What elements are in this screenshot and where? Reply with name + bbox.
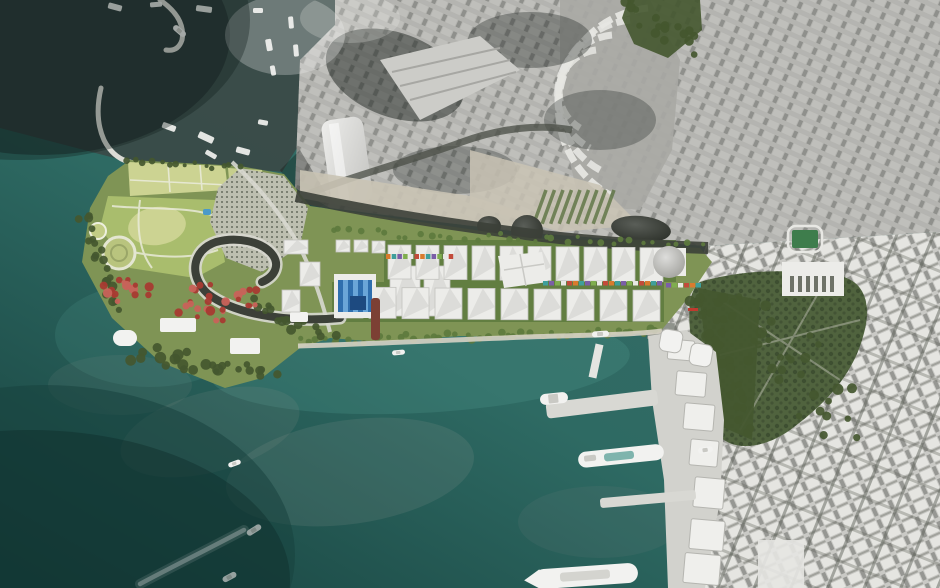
kowloon-park-trees-tree — [778, 366, 786, 374]
red-tree — [126, 284, 131, 289]
highway-row-tree — [335, 226, 341, 232]
kowloon-park-trees-tree — [807, 332, 814, 339]
mid-scatter-tree — [266, 305, 274, 313]
north-edge-tree — [226, 162, 232, 168]
terminal-block — [675, 371, 707, 398]
park-pavilion — [290, 312, 308, 322]
terminal-block — [683, 552, 721, 585]
terminal-block — [689, 519, 725, 552]
tst-wedge-trees-tree — [726, 391, 734, 399]
tst-wedge-trees-tree — [734, 416, 742, 424]
south-tip-tree — [235, 366, 242, 373]
highway-row-tree — [701, 242, 705, 246]
south-tip-tree — [153, 343, 162, 352]
highway-row-tree — [429, 233, 436, 240]
red-tree — [206, 306, 216, 316]
south-tip-tree — [174, 356, 181, 363]
kowloon-park-trees-tree — [845, 416, 851, 422]
red-tree — [189, 285, 197, 293]
kowloon-park-trees-tree — [729, 298, 737, 306]
boat-deck — [597, 332, 603, 336]
market-stall — [392, 254, 397, 259]
mid-scatter-tree — [250, 295, 258, 303]
promenade-row-tree — [452, 331, 458, 337]
tst-wedge-trees-tree — [713, 317, 721, 325]
gray-dome-venue — [653, 246, 685, 278]
tst-wedge-trees-tree — [733, 403, 741, 411]
kowloon-park-trees-tree — [767, 317, 776, 326]
highway-row-tree — [438, 234, 443, 239]
market-stall — [645, 281, 650, 286]
large-white-block — [758, 540, 804, 588]
tst-wedge-trees-tree — [706, 310, 713, 317]
south-tip-tree — [183, 348, 191, 356]
kowloon-park-trees-tree — [797, 371, 805, 379]
market-stall — [672, 283, 677, 288]
red-tree — [253, 302, 258, 307]
red-marker — [688, 308, 698, 311]
promenade-row-tree — [298, 336, 303, 341]
kowloon-park-trees-tree — [719, 315, 727, 323]
highway-row-tree — [498, 231, 503, 236]
north-forest-tree — [680, 30, 689, 39]
boat-deck — [548, 394, 559, 404]
highway-row-tree — [381, 230, 387, 236]
kowloon-park-trees-tree — [767, 364, 777, 374]
kowloon-park-trees-tree — [718, 293, 729, 304]
market-stall — [573, 281, 578, 286]
red-tree — [197, 282, 204, 289]
market-stall — [609, 281, 614, 286]
sports-pitch — [792, 230, 818, 248]
red-tree — [133, 283, 138, 288]
market-stall — [386, 254, 391, 259]
mid-scatter-tree — [315, 329, 322, 336]
red-tree — [145, 282, 154, 291]
north-edge-tree — [123, 157, 130, 164]
north-edge-tree — [149, 158, 156, 165]
highway-row-tree — [533, 239, 537, 243]
south-tip-tree — [188, 365, 198, 375]
north-edge-tree — [183, 163, 187, 167]
red-tree — [213, 318, 219, 324]
north-edge-tree — [193, 160, 198, 165]
highway-row-tree — [462, 236, 468, 242]
red-tree — [236, 297, 241, 302]
north-edge-tree — [209, 166, 214, 171]
kowloon-park-trees-tree — [809, 390, 819, 400]
west-edge-tree — [91, 240, 98, 247]
boat — [592, 330, 609, 337]
highway-row-tree — [612, 242, 617, 247]
market-stall — [666, 283, 671, 288]
boat-deck — [396, 351, 401, 354]
kowloon-park-trees-tree — [728, 312, 737, 321]
market-stall — [621, 281, 626, 286]
tst-wedge-trees-tree — [694, 298, 701, 305]
highway-row-tree — [506, 236, 512, 242]
red-tree — [220, 317, 226, 323]
market-stall — [651, 281, 656, 286]
market-stall — [426, 254, 431, 259]
highway-row-tree — [418, 231, 424, 237]
red-tree — [245, 303, 251, 309]
aquatics-centre — [334, 274, 376, 318]
circular-plaza — [103, 237, 135, 269]
tst-wedge-trees-tree — [718, 328, 726, 336]
kowloon-park-trees-tree — [765, 337, 771, 343]
red-tree — [187, 301, 194, 308]
north-edge-tree — [133, 157, 139, 163]
south-tip-tree — [246, 366, 254, 374]
west-edge-tree — [85, 237, 92, 244]
red-tree — [132, 291, 139, 298]
kowloon-park-trees-tree — [787, 356, 794, 363]
market-stall — [579, 281, 584, 286]
red-tree — [174, 308, 182, 316]
west-edge-tree — [89, 225, 96, 232]
market-stall — [443, 254, 448, 259]
highway-row-tree — [376, 227, 381, 232]
red-tree — [115, 299, 121, 305]
market-stall — [639, 281, 644, 286]
red-tree — [208, 296, 213, 301]
red-tree — [252, 286, 260, 294]
kowloon-park-trees-tree — [825, 398, 832, 405]
west-edge-tree — [99, 256, 108, 265]
market-stall — [585, 281, 590, 286]
promenade-row-tree — [444, 330, 452, 338]
west-edge-tree — [75, 215, 83, 223]
highway-row-tree — [358, 228, 365, 235]
south-tip-tree — [273, 370, 281, 378]
mid-scatter-tree — [332, 331, 341, 340]
kowloon-park-trees-tree — [760, 300, 771, 311]
promenade-row-tree — [386, 335, 391, 340]
market-stall — [633, 281, 638, 286]
mid-scatter-tree — [286, 325, 296, 335]
market-stall — [678, 283, 683, 288]
market-stall — [415, 254, 420, 259]
tst-wedge-trees-tree — [743, 430, 751, 438]
market-stall — [561, 281, 566, 286]
west-edge-tree — [98, 246, 105, 253]
south-tip-tree — [180, 365, 188, 373]
highway-row-tree — [346, 226, 353, 233]
north-edge-tree — [172, 161, 179, 168]
highway-row-tree — [626, 237, 633, 244]
highway-row-tree — [446, 235, 453, 242]
highway-row-tree — [402, 235, 407, 240]
north-forest-tree — [661, 24, 670, 33]
market-stall — [603, 281, 608, 286]
tst-wedge-trees-tree — [717, 359, 727, 369]
highway-row-tree — [486, 233, 491, 238]
west-edge-tree — [104, 265, 111, 272]
south-tip-tree — [125, 355, 136, 366]
kowloon-park-trees-tree — [832, 384, 843, 395]
tst-wedge-trees-tree — [705, 329, 714, 338]
south-tip-tree — [258, 366, 265, 373]
north-forest-tree — [660, 36, 669, 45]
market-stall — [403, 254, 408, 259]
market-stall — [690, 283, 695, 288]
market-stall — [409, 254, 414, 259]
market-stall — [567, 281, 572, 286]
market-stall — [543, 281, 548, 286]
market-stall — [591, 281, 596, 286]
tst-wedge-trees-tree — [735, 381, 742, 388]
red-timber-pier — [371, 298, 380, 340]
kowloon-park-trees-tree — [822, 412, 831, 421]
highway-row-tree — [641, 241, 645, 245]
west-edge-tree — [116, 307, 122, 313]
tst-wedge-trees-tree — [726, 363, 735, 372]
park-pavilion — [113, 330, 137, 346]
highway-row-tree — [597, 239, 604, 246]
west-edge-tree — [84, 214, 93, 223]
highway-row-tree — [618, 236, 624, 242]
highway-row-tree — [650, 240, 654, 244]
north-forest-tree — [633, 6, 640, 13]
red-tree — [145, 292, 151, 298]
north-edge-tree — [167, 162, 173, 168]
north-forest-tree — [691, 51, 698, 58]
kowloon-park-trees-tree — [774, 375, 783, 384]
north-edge-tree — [139, 160, 146, 167]
aerial-masterplan-image — [0, 0, 940, 588]
north-edge-tree — [160, 160, 165, 165]
highway-row-tree — [516, 238, 520, 242]
highway-row-tree — [684, 239, 691, 246]
masterplan-svg — [0, 0, 940, 588]
north-forest-tree — [652, 14, 660, 22]
pond — [203, 209, 211, 215]
market-stall — [432, 254, 437, 259]
north-edge-tree — [205, 164, 209, 168]
north-forest-tree — [674, 23, 681, 30]
market-stall — [437, 254, 442, 259]
north-forest-tree — [636, 23, 642, 29]
market-stall — [549, 281, 554, 286]
promenade-row-tree — [498, 329, 506, 337]
market-stall — [696, 283, 701, 288]
kowloon-park-trees-tree — [777, 354, 784, 361]
terminal-block — [683, 403, 715, 432]
red-tree — [220, 307, 226, 313]
park-pavilion — [160, 318, 196, 332]
kowloon-park-trees-tree — [847, 383, 857, 393]
south-tip-tree — [201, 359, 212, 370]
promenade-row-tree — [403, 331, 410, 338]
highway-row-tree — [475, 238, 481, 244]
market-stall — [657, 281, 662, 286]
kowloon-park-trees-tree — [736, 293, 742, 299]
north-forest-tree — [690, 32, 698, 40]
highway-row-tree — [547, 235, 554, 242]
red-tree — [194, 305, 201, 312]
highway-row-tree — [576, 235, 580, 239]
highway-row-tree — [674, 242, 679, 247]
tst-wedge-trees-tree — [698, 311, 707, 320]
city-shadow — [544, 90, 656, 150]
south-tip-tree — [162, 361, 170, 369]
rounded-tower — [688, 342, 713, 367]
south-tip-tree — [218, 362, 226, 370]
red-tree — [100, 282, 108, 290]
market-stall — [615, 281, 620, 286]
market-stall — [597, 281, 602, 286]
red-tree — [246, 287, 252, 293]
kowloon-park-trees-tree — [750, 338, 756, 344]
terminal-block — [693, 477, 726, 510]
red-tree — [103, 288, 112, 297]
market-stall — [555, 281, 560, 286]
kowloon-park-trees-tree — [853, 434, 860, 441]
boat-deck — [702, 448, 708, 453]
kowloon-park-trees-tree — [756, 327, 767, 338]
market-stall — [449, 254, 454, 259]
mid-scatter-tree — [277, 316, 287, 326]
highway-row-tree — [397, 235, 402, 240]
market-stall — [397, 254, 402, 259]
tst-wedge-trees-tree — [740, 395, 748, 403]
kowloon-park-trees-tree — [796, 413, 803, 420]
kowloon-park-trees-tree — [815, 341, 822, 348]
kowloon-park-trees-tree — [820, 431, 828, 439]
tst-wedge-trees-tree — [714, 341, 723, 350]
west-edge-tree — [91, 254, 99, 262]
market-stall — [627, 281, 632, 286]
park-pavilion — [230, 338, 260, 354]
north-edge-tree — [238, 164, 244, 170]
red-tree — [221, 297, 230, 306]
south-tip-tree — [136, 354, 145, 363]
red-tree — [208, 282, 214, 288]
red-tree — [195, 314, 200, 319]
main-pool — [350, 296, 366, 310]
rounded-tower — [658, 328, 683, 353]
market-stall — [420, 254, 425, 259]
highway-row-tree — [565, 239, 572, 246]
kowloon-park-trees-tree — [744, 356, 754, 366]
kowloon-park-trees-tree — [800, 353, 810, 363]
highway-row-tree — [588, 239, 593, 244]
market-stall — [684, 283, 689, 288]
